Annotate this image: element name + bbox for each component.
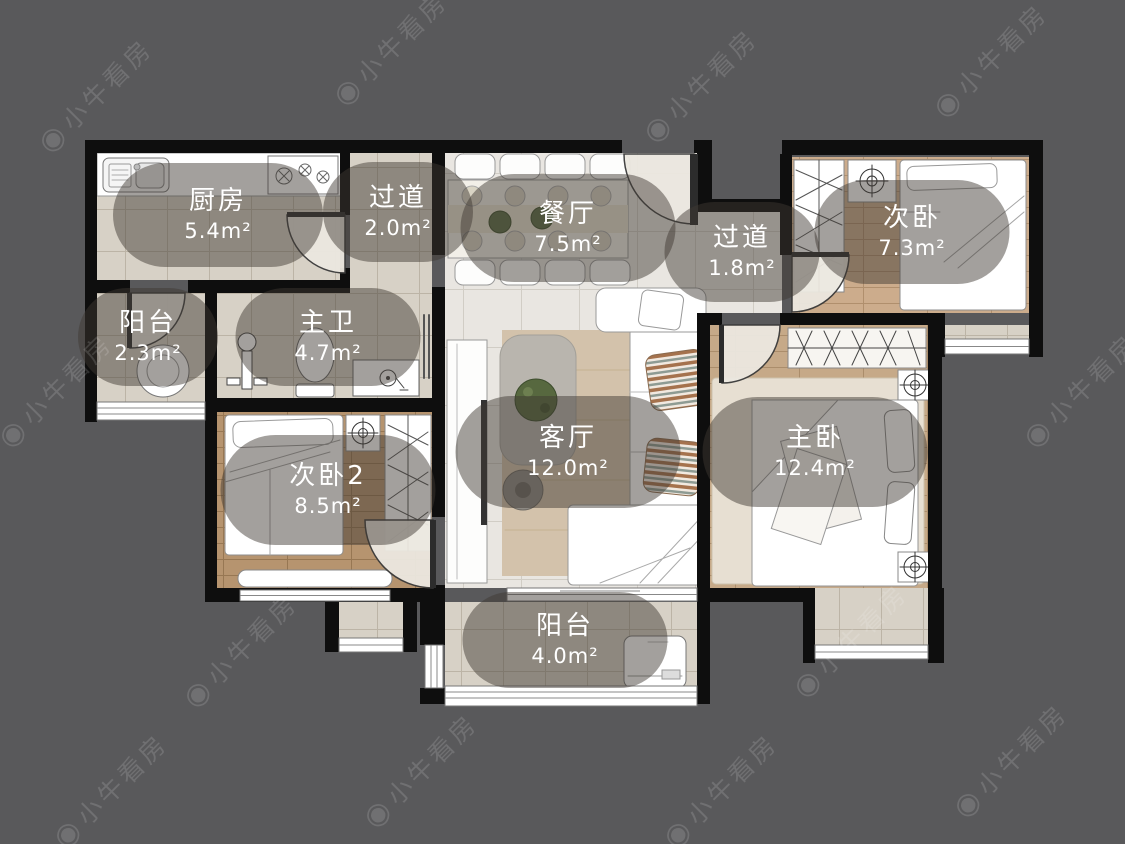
- hall-bath-link-floor: [348, 280, 432, 293]
- hallway2-floor: [697, 212, 782, 313]
- kitchen-counter: [97, 153, 343, 196]
- stub3-tile: [945, 325, 1029, 339]
- floor-plan-canvas: 厨房 5.4m² 过道 2.0m² 餐厅 7.5m² 过道 1.8m² 次卧 7…: [0, 0, 1125, 844]
- hallway1-floor: [350, 153, 432, 280]
- tv: [481, 400, 487, 525]
- toilet: [296, 328, 334, 382]
- balcony2-side-window: [425, 645, 443, 688]
- dining-set: [448, 154, 630, 285]
- stub1-tile: [339, 602, 403, 638]
- bedroom2-pillow: [907, 163, 998, 190]
- master-pillow: [884, 481, 915, 545]
- stub2-tile: [815, 588, 928, 645]
- sofa-pillow: [638, 289, 685, 330]
- balcony1-washer: [137, 345, 189, 397]
- kitchen-stove: [268, 156, 338, 194]
- bath-faucet: [238, 333, 256, 351]
- bedroom2-stub-window: [945, 339, 1029, 354]
- living-balcony-slider: [507, 588, 697, 601]
- bedroom3-pillow: [233, 418, 334, 447]
- table-plant: [531, 207, 553, 229]
- balcony1-window: [97, 402, 205, 420]
- table-plant: [489, 211, 511, 233]
- toilet-tank: [296, 384, 334, 397]
- balcony2-washer: [624, 636, 686, 688]
- master-pillow: [884, 409, 915, 473]
- living-plant: [515, 379, 557, 421]
- stub1-window: [339, 638, 403, 652]
- bedroom3-window: [240, 590, 390, 601]
- sofa-pouf: [642, 437, 703, 497]
- balcony2-window: [445, 686, 697, 706]
- bedroom3-bench: [238, 570, 392, 587]
- master-stub-window: [815, 645, 928, 659]
- floor-plan-drawing: [0, 0, 1125, 844]
- sofa-chaise: [568, 505, 708, 585]
